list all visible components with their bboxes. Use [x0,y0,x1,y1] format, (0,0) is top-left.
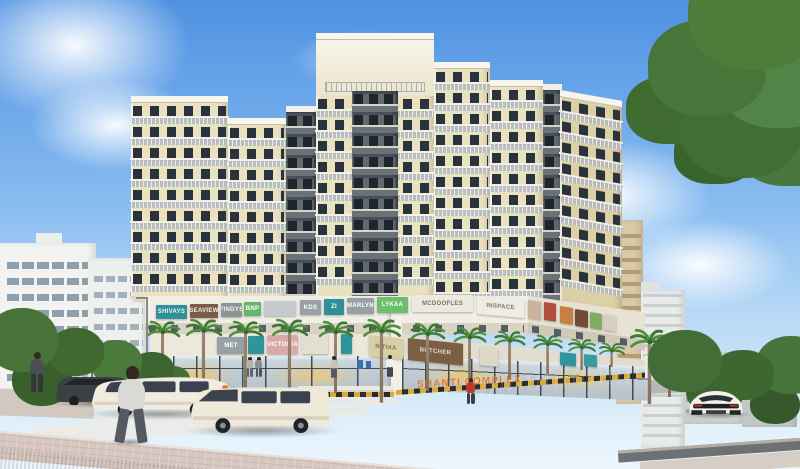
floors [434,69,490,300]
floor [490,213,543,234]
floor [434,132,490,153]
poster [366,361,371,368]
residential-tower [228,118,286,302]
pedestrian [255,357,263,377]
window-band [436,261,488,271]
window-band [354,241,396,251]
floors [490,87,543,297]
facade-accent-column [352,91,398,302]
window-band [230,233,284,243]
window-band [545,241,560,251]
window-band [354,178,396,188]
person-head [126,366,140,380]
floors [352,91,398,301]
window-band [230,254,284,264]
floor [434,195,490,216]
floor [228,230,286,251]
window-band [288,284,314,294]
van-white [185,381,335,433]
floor [352,259,398,280]
residential-tower [131,96,228,302]
window-band [492,258,541,268]
window-band [436,219,488,229]
roof-terrace [316,40,434,96]
floor [286,260,316,281]
person-leg [256,368,259,377]
person-leg [467,393,470,405]
floor [352,196,398,217]
floor [490,87,543,108]
window-band [288,158,314,168]
window-band [492,237,541,247]
window-band [436,198,488,208]
shop-sign [528,300,541,320]
bus-shelter-roof [62,352,134,357]
window-band [354,136,396,146]
pedestrian [466,378,476,404]
window-band [288,200,314,210]
window-band [436,156,488,166]
person-leg [334,368,337,378]
floors [560,97,622,297]
floor [434,216,490,237]
shop-sign [604,314,616,332]
floor [286,176,316,197]
window-band [545,136,560,146]
shop-sign: MARLYN [347,298,374,314]
parapet [228,118,286,125]
person-leg [259,368,262,377]
balcony-railing [228,287,286,293]
floor [352,91,398,112]
shop-sign: KDS [300,300,321,315]
floor [352,217,398,238]
window-band [492,90,541,100]
window-band [492,216,541,226]
window-band [436,282,488,292]
person-leg [133,408,148,443]
floor [490,192,543,213]
floor [131,166,228,187]
shop-sign: ZI [324,299,344,315]
window-band [545,94,560,104]
floor [228,251,286,272]
floor [352,238,398,259]
shop-sign [560,306,573,325]
parapet [316,33,434,40]
window-band [436,240,488,250]
person-torso [30,359,44,376]
window-band [354,94,396,104]
person-torso [118,379,145,411]
window-band [230,149,284,159]
window-band [436,93,488,103]
parapet [490,80,543,87]
window-band [288,137,314,147]
pedestrian [118,366,148,442]
parapet [286,106,316,113]
floor [490,129,543,150]
floor [434,69,490,90]
window-band [354,199,396,209]
street-signboard [86,356,97,366]
floor [490,171,543,192]
person-leg [38,374,43,392]
floor [228,146,286,167]
window-band [436,72,488,82]
floor [434,174,490,195]
floor [286,134,316,155]
window-band [492,174,541,184]
trees-right [648,330,722,392]
floor [286,218,316,239]
window-band [492,132,541,142]
shop-sign: LYKAA [377,297,408,313]
floor [490,234,543,255]
window-band [288,242,314,252]
floor [352,175,398,196]
window-band [436,177,488,187]
floors [286,113,316,302]
floor [131,229,228,250]
window-band [288,221,314,231]
person-leg [390,367,393,377]
window-band [354,157,396,167]
streetlight-lamp [130,296,136,299]
floor [131,208,228,229]
pedestrian [330,356,339,378]
poster [357,360,363,369]
window-band [492,153,541,163]
shop-sign: SHIVAYS [156,305,187,319]
window-band [133,106,226,116]
window-band [436,114,488,124]
residential-tower [560,90,622,313]
floor [434,111,490,132]
floor [131,124,228,145]
shop-sign [590,312,602,330]
window-band [545,178,560,188]
floor [131,145,228,166]
floor [434,153,490,174]
window-band [133,148,226,158]
window-band [545,115,560,125]
floor [131,187,228,208]
floors [131,103,228,292]
residential-tower [434,62,490,302]
residential-tower [490,80,543,302]
floor [490,150,543,171]
window-band [288,179,314,189]
window-band [133,211,226,221]
window-band [133,127,226,137]
person-torso [466,382,475,393]
shop-sign [264,301,296,316]
pedestrian [30,352,46,392]
floor [490,255,543,276]
window-band [133,274,226,284]
window-band [492,279,541,289]
window-band [545,283,560,293]
floor [352,154,398,175]
floor [352,112,398,133]
floor [490,108,543,129]
person-leg [250,368,253,377]
floor [286,197,316,218]
window-band [133,169,226,179]
floor [352,133,398,154]
floor [490,276,543,297]
shop-sign [575,309,588,328]
person-leg [31,374,36,392]
floor [228,209,286,230]
window-band [545,262,560,272]
window-band [230,275,284,285]
floor [434,237,490,258]
person-leg [331,368,334,378]
floor [228,188,286,209]
floor [434,258,490,279]
architectural-render: SHANTI COMPLEX SHIVAYSSEAVIEWFINDYSBNPKD… [0,0,800,469]
window-band [354,220,396,230]
shop-sign: FINDYS [221,303,242,317]
window-band [133,190,226,200]
pedestrian [386,355,395,377]
window-band [354,262,396,272]
window-band [545,199,560,209]
balcony-railing [131,286,228,292]
window-band [545,220,560,230]
parapet [131,96,228,103]
shop-sign: SEAVIEW [190,304,218,318]
window-band [492,195,541,205]
floor [131,271,228,292]
floor [286,113,316,134]
floor [286,155,316,176]
shop-sign: BNP [244,302,261,316]
floor [228,272,286,293]
parapet [434,62,490,69]
window-band [436,135,488,145]
window-band [354,283,396,293]
window-band [354,115,396,125]
window-band [133,253,226,263]
window-band [545,157,560,167]
floor [286,239,316,260]
window-band [230,128,284,138]
person-leg [247,368,250,377]
sports-car-white [684,387,748,417]
floors [228,125,286,293]
floor [434,90,490,111]
shop-sign [544,302,556,322]
facade-accent-column [286,106,316,302]
window-band [288,116,314,126]
pedestrian [246,357,254,377]
person-leg [471,393,474,405]
person-leg [387,367,390,377]
window-band [230,191,284,201]
floor [228,125,286,146]
floor [131,250,228,271]
floor [131,103,228,124]
window-band [133,232,226,242]
shop-sign: MCDOOFLES [412,295,473,312]
window-band [288,263,314,273]
window-band [492,111,541,121]
window-band [230,170,284,180]
window-band [230,212,284,222]
floor [228,167,286,188]
